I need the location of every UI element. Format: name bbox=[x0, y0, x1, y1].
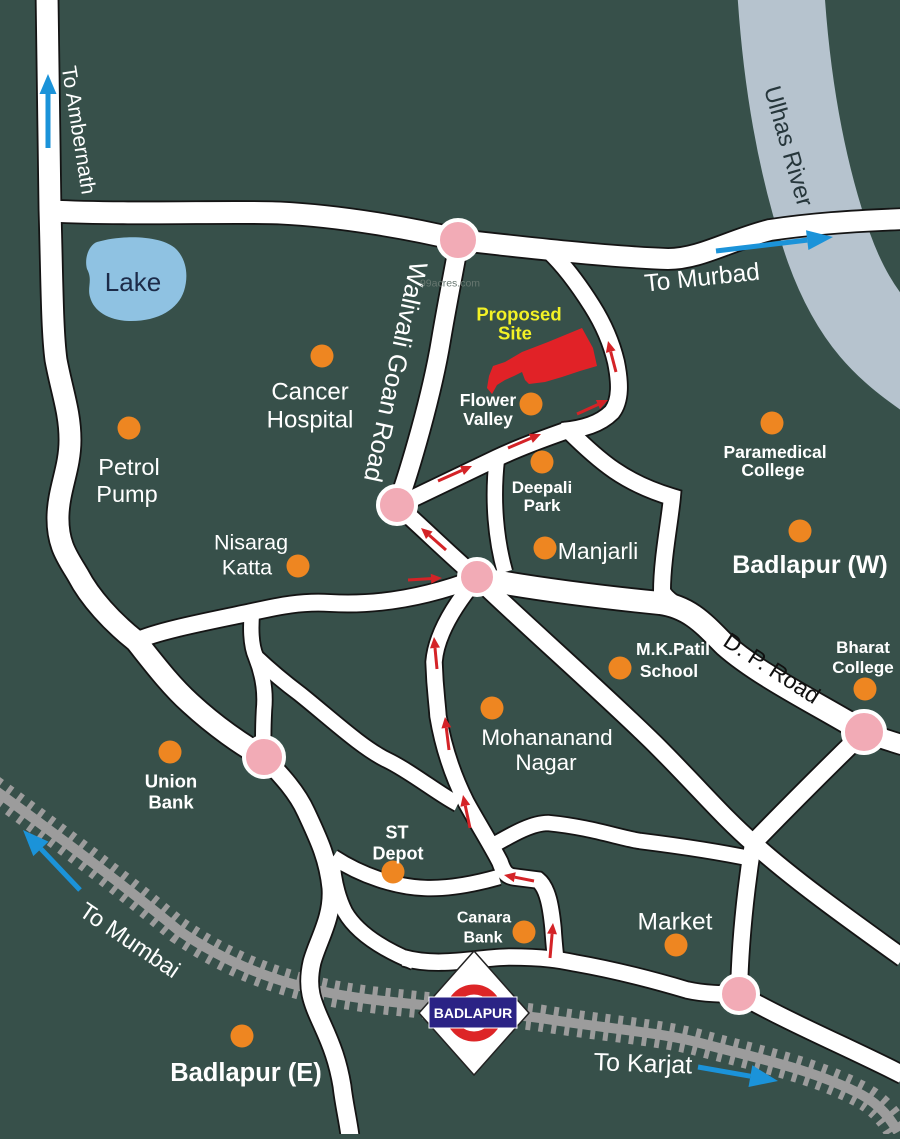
svg-text:Cancer: Cancer bbox=[271, 378, 348, 405]
svg-text:Katta: Katta bbox=[222, 556, 272, 580]
svg-text:Pump: Pump bbox=[96, 481, 157, 507]
svg-text:Bank: Bank bbox=[148, 792, 194, 813]
svg-text:Union: Union bbox=[145, 771, 197, 792]
svg-text:Valley: Valley bbox=[463, 409, 513, 429]
svg-text:M.K.Patil: M.K.Patil bbox=[636, 639, 710, 659]
svg-text:Canara: Canara bbox=[457, 910, 511, 927]
svg-text:Lake: Lake bbox=[105, 267, 161, 297]
svg-text:BADLAPUR: BADLAPUR bbox=[434, 1005, 513, 1021]
svg-text:Hospital: Hospital bbox=[267, 406, 354, 433]
svg-text:To Karjat: To Karjat bbox=[593, 1048, 693, 1079]
svg-text:Petrol: Petrol bbox=[98, 454, 159, 480]
svg-text:Nisarag: Nisarag bbox=[214, 531, 288, 555]
svg-text:99acres.com: 99acres.com bbox=[420, 278, 480, 290]
svg-text:ST: ST bbox=[385, 822, 408, 842]
svg-text:Bank: Bank bbox=[463, 930, 502, 947]
svg-text:Market: Market bbox=[638, 909, 713, 936]
svg-text:Nagar: Nagar bbox=[515, 750, 577, 775]
svg-text:Bharat: Bharat bbox=[836, 638, 890, 657]
svg-text:Badlapur (W): Badlapur (W) bbox=[732, 551, 888, 579]
svg-text:College: College bbox=[741, 460, 804, 480]
svg-text:College: College bbox=[832, 658, 893, 677]
svg-text:Badlapur (E): Badlapur (E) bbox=[170, 1059, 322, 1087]
svg-text:Flower: Flower bbox=[460, 390, 517, 410]
svg-text:Proposed: Proposed bbox=[476, 304, 561, 325]
svg-text:Mohananand: Mohananand bbox=[481, 725, 612, 750]
svg-text:Deepali: Deepali bbox=[512, 478, 572, 497]
svg-text:Paramedical: Paramedical bbox=[723, 442, 826, 462]
svg-text:Site: Site bbox=[498, 323, 532, 344]
svg-text:School: School bbox=[640, 661, 698, 681]
svg-text:Manjarli: Manjarli bbox=[558, 538, 639, 564]
svg-text:Depot: Depot bbox=[373, 843, 424, 863]
svg-text:Park: Park bbox=[524, 496, 561, 515]
